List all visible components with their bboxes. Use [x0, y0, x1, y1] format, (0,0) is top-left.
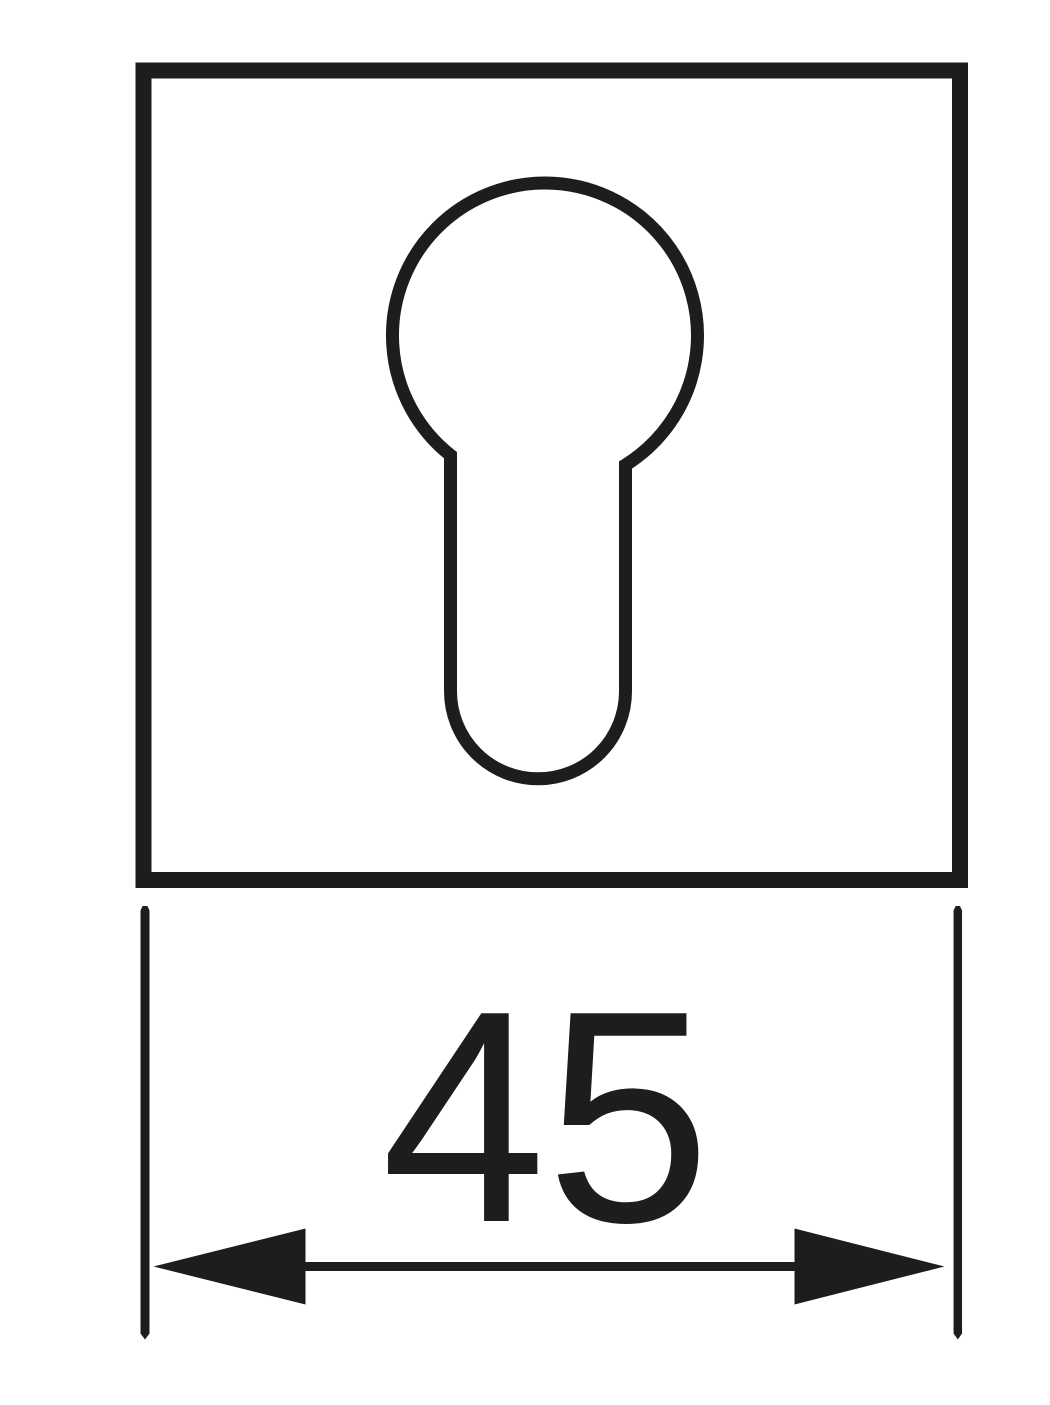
svg-text:45: 45 — [381, 948, 711, 1285]
